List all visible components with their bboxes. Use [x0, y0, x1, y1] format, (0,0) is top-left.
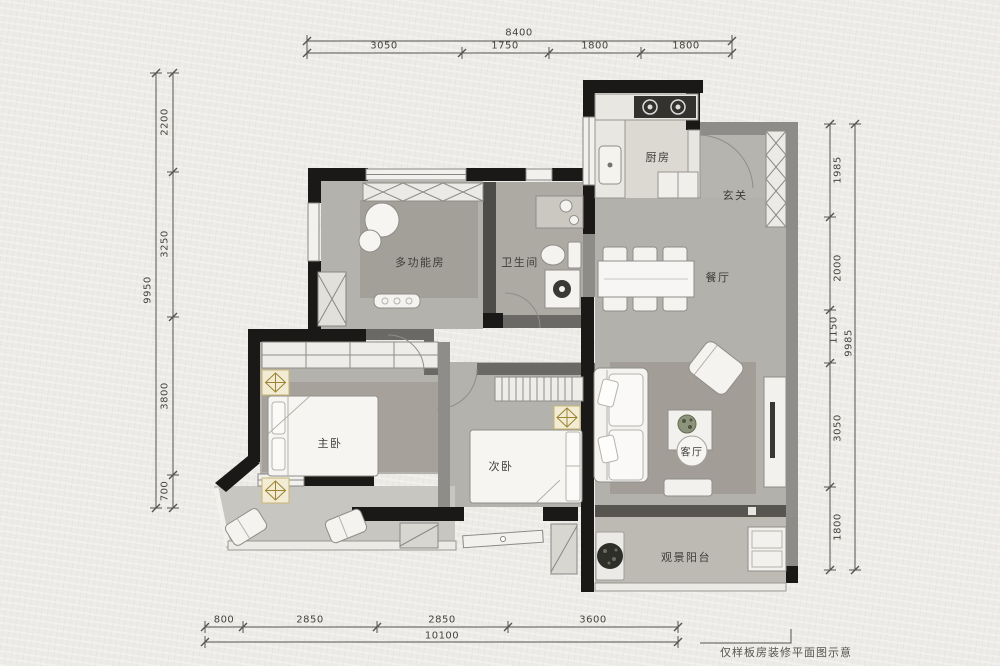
plant-icon [678, 415, 696, 433]
ottoman [677, 436, 707, 466]
floorplan-graphic [0, 0, 1000, 666]
plant-icon [597, 543, 623, 569]
bench [664, 479, 712, 496]
bench [374, 294, 420, 308]
balcony-cabinet [748, 527, 786, 571]
master-closet [262, 342, 438, 368]
washer [545, 270, 580, 308]
compass-marker-icon [554, 406, 580, 429]
floorplan-page: 厨房 玄关 多功能房 卫生间 餐厅 主卧 次卧 客厅 观景阳台 8400 305… [0, 0, 1000, 666]
sofa [594, 368, 648, 482]
entry-lattice-cabinet [766, 131, 786, 227]
compass-marker-icon [262, 478, 289, 503]
multi-room-wardrobe [363, 183, 483, 201]
tv [770, 402, 775, 458]
dining-set [598, 247, 694, 311]
ac-niche-balcony [400, 523, 438, 548]
leader-line [700, 629, 791, 643]
second-closet [495, 377, 583, 401]
ac-niche-multi [318, 272, 346, 326]
tv-console [764, 377, 786, 487]
second-bed [470, 430, 582, 503]
compass-marker-icon [262, 370, 289, 395]
glass-panel [551, 524, 577, 574]
